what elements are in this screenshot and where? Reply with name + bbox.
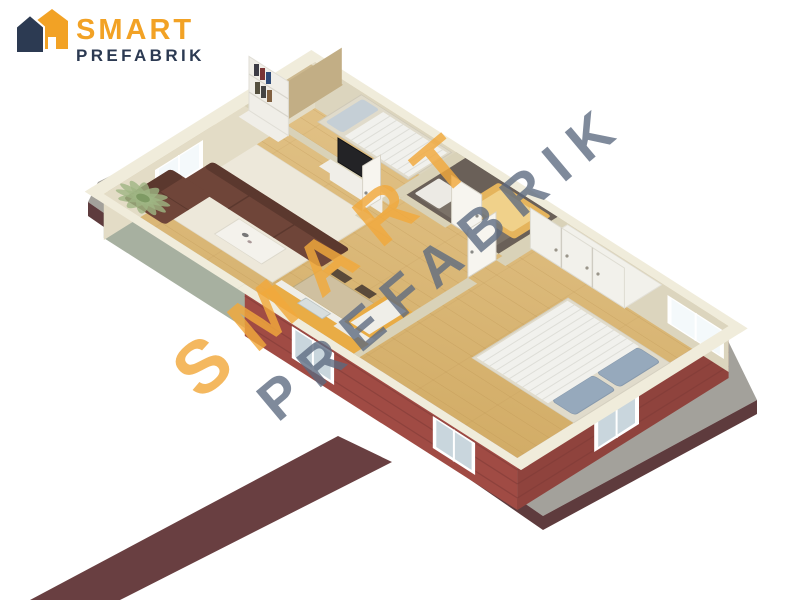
house-icon	[14, 6, 70, 58]
closet-knob	[565, 254, 568, 257]
floor-plan-render	[0, 0, 800, 600]
logo-text-primary: SMART	[76, 16, 205, 45]
closet-knob	[585, 266, 588, 269]
closet-knob	[554, 248, 557, 251]
logo-text-secondary: PREFABRIK	[76, 47, 205, 64]
book	[255, 82, 260, 94]
walkway	[30, 436, 392, 600]
door-knob	[364, 191, 367, 194]
render-stage: SMART PREFABRIK SMART PREFABRIK	[0, 0, 800, 600]
closet-knob	[596, 272, 599, 275]
door-knob	[470, 250, 473, 253]
book	[266, 72, 271, 84]
book	[267, 90, 272, 102]
logo-text: SMART PREFABRIK	[76, 16, 205, 64]
book	[260, 68, 265, 80]
book	[254, 64, 259, 76]
book	[261, 86, 266, 98]
brand-logo: SMART PREFABRIK	[14, 6, 205, 64]
door-knob	[475, 214, 478, 217]
